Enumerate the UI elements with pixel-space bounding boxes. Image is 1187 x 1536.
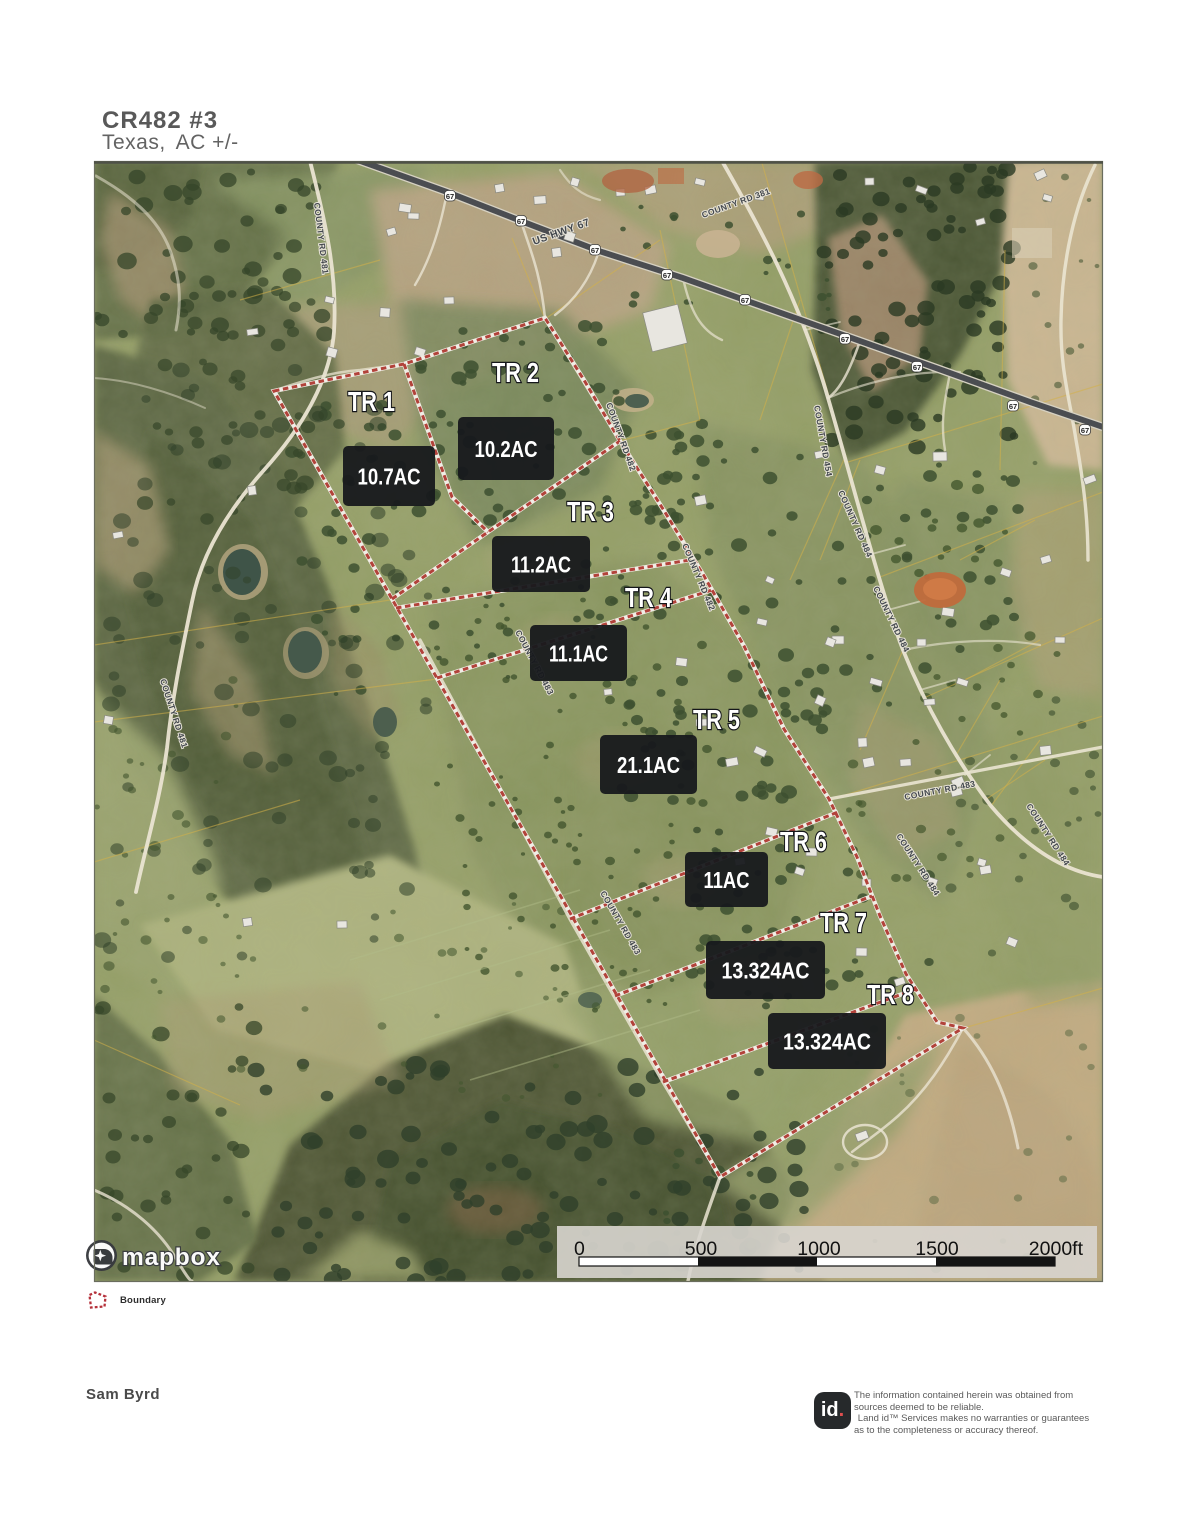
svg-text:67: 67: [741, 296, 749, 305]
svg-text:TR 4: TR 4: [625, 582, 672, 613]
svg-text:11.1AC: 11.1AC: [549, 641, 608, 667]
svg-text:TR 7: TR 7: [820, 907, 867, 938]
svg-text:11.2AC: 11.2AC: [511, 552, 571, 578]
svg-text:13.324AC: 13.324AC: [722, 958, 810, 984]
svg-text:TR 5: TR 5: [693, 704, 740, 735]
svg-text:67: 67: [517, 217, 525, 226]
svg-text:67: 67: [913, 363, 921, 372]
svg-text:TR 1: TR 1: [348, 386, 395, 417]
svg-text:10.2AC: 10.2AC: [475, 436, 538, 462]
svg-text:mapbox: mapbox: [122, 1244, 221, 1271]
svg-text:67: 67: [1081, 426, 1089, 435]
svg-text:21.1AC: 21.1AC: [617, 752, 680, 778]
svg-text:13.324AC: 13.324AC: [783, 1029, 871, 1055]
svg-text:TR 3: TR 3: [567, 496, 614, 527]
svg-text:10.7AC: 10.7AC: [358, 464, 421, 490]
svg-text:67: 67: [1009, 402, 1017, 411]
svg-text:TR 2: TR 2: [492, 357, 539, 388]
svg-text:TR 8: TR 8: [867, 979, 914, 1010]
svg-text:TR 6: TR 6: [780, 826, 827, 857]
svg-text:67: 67: [841, 335, 849, 344]
svg-text:11AC: 11AC: [704, 867, 750, 893]
svg-text:67: 67: [591, 246, 599, 255]
svg-text:67: 67: [663, 271, 671, 280]
svg-text:67: 67: [446, 192, 454, 201]
